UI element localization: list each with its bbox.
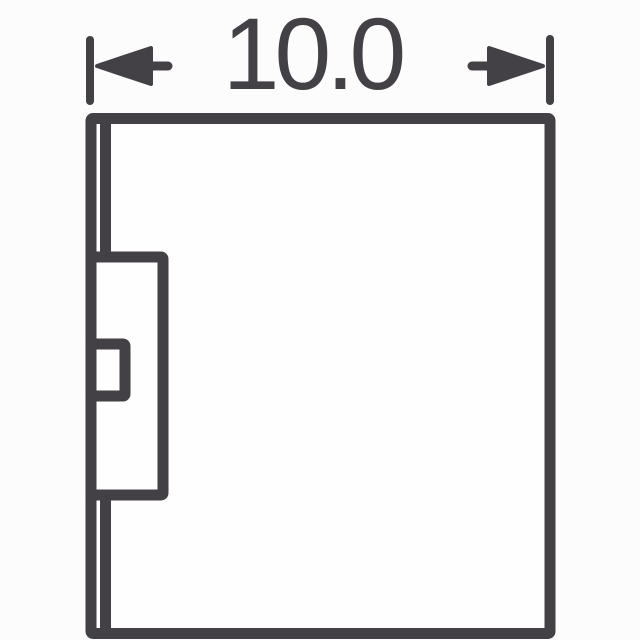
component-outline-group — [91, 119, 550, 634]
technical-drawing-page: 10.0 — [0, 0, 640, 640]
package-outline-diagram: 10.0 — [0, 0, 640, 640]
width-dimension-annotation: 10.0 — [90, 0, 550, 111]
dimension-value-label: 10.0 — [223, 0, 403, 111]
dimension-arrow-left-icon — [97, 48, 151, 84]
terminal-notch-outline — [91, 344, 125, 396]
dimension-arrow-right-icon — [489, 48, 543, 84]
